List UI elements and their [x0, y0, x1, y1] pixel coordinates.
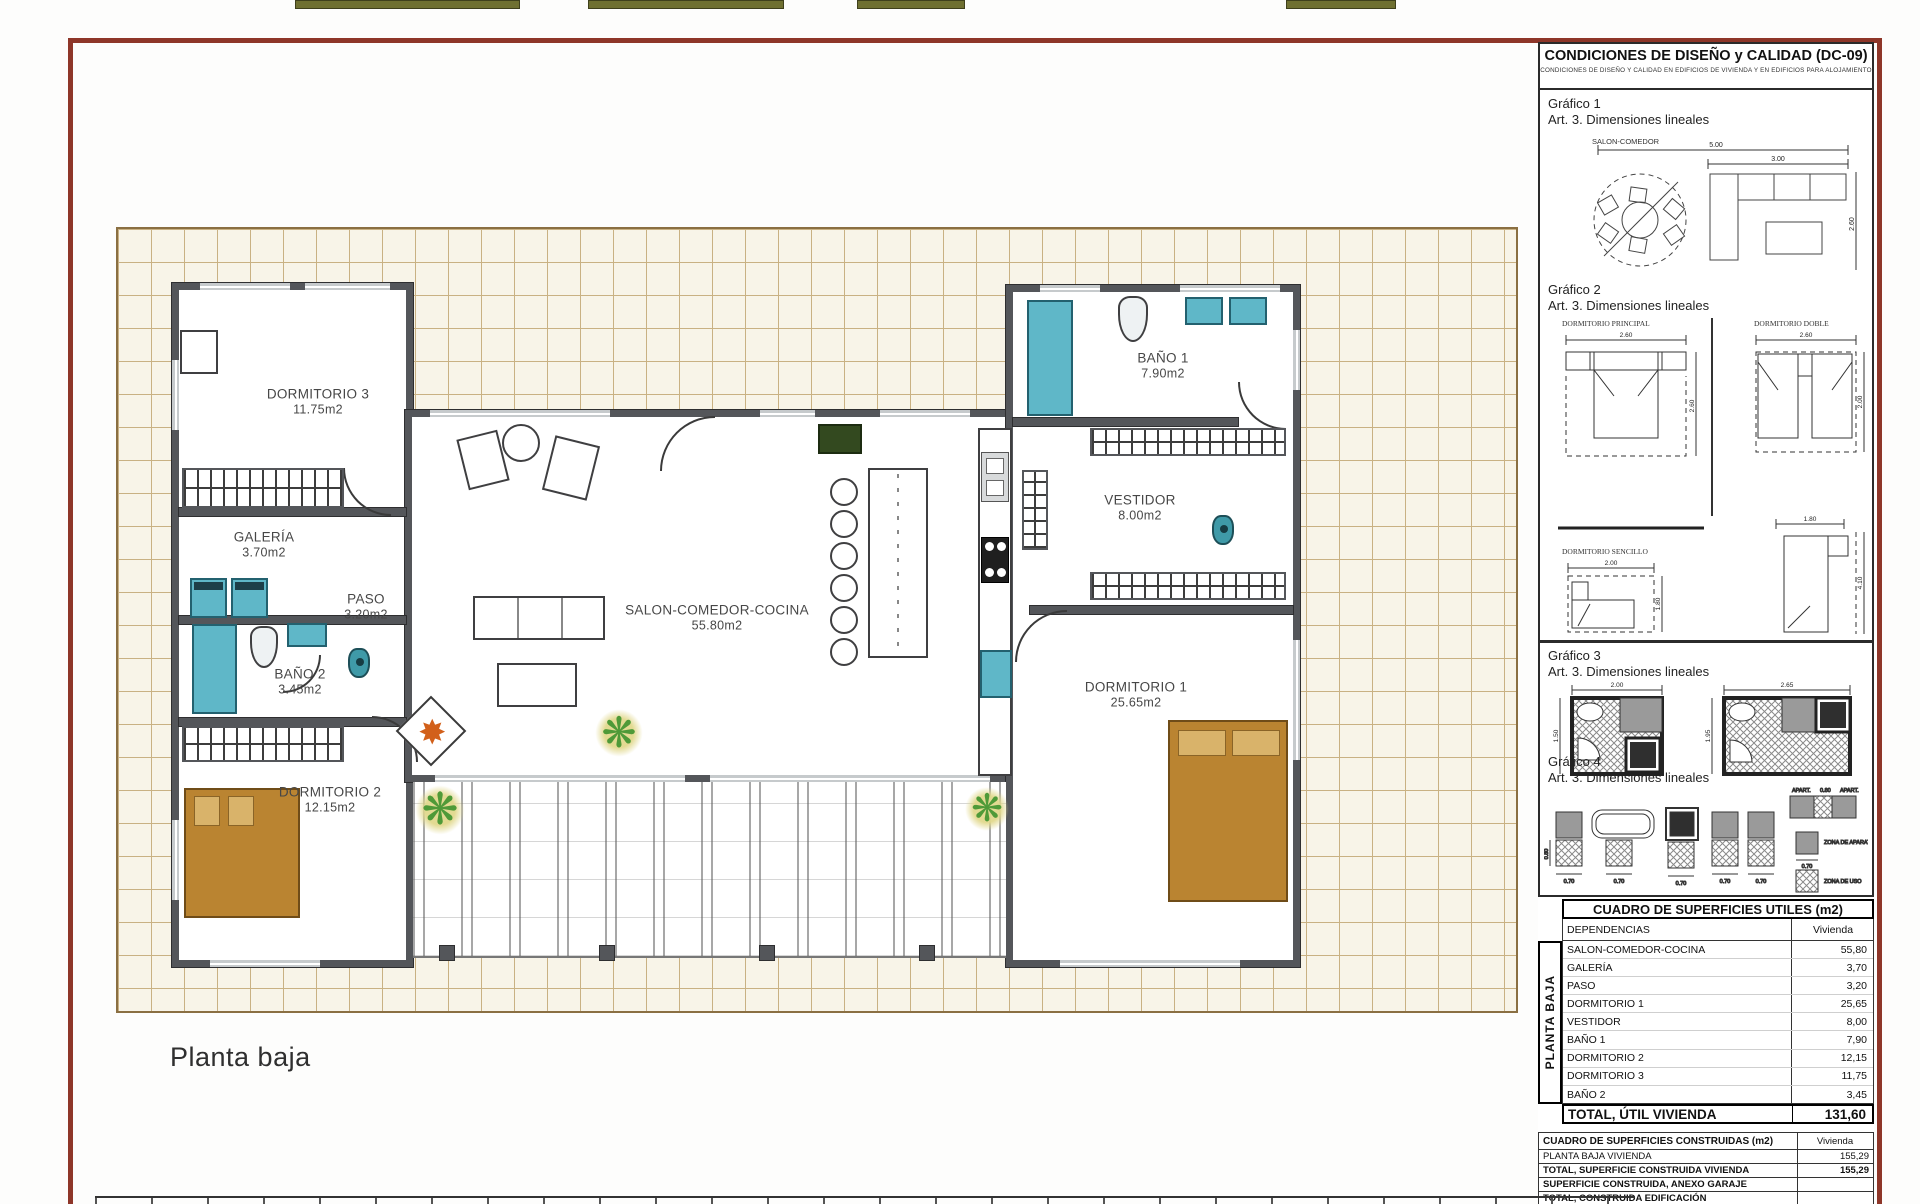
dim-label: 0.70 [1756, 879, 1767, 885]
window [880, 410, 970, 417]
side-table [502, 424, 540, 462]
planter-box [818, 424, 862, 454]
washer-panel [194, 582, 223, 590]
window [1060, 960, 1240, 967]
table-rows: SALON-COMEDOR-COCINA55,80 GALERÍA3,70 PA… [1562, 941, 1874, 1104]
sink-bano1 [1229, 297, 1267, 325]
table-row: SALON-COMEDOR-COCINA55,80 [1563, 941, 1873, 959]
room-name: SALON-COMEDOR-COCINA [625, 602, 809, 618]
window [760, 410, 815, 417]
bathroom-large-sketch: 2.65 1.95 [1705, 682, 1850, 774]
dim-label: APART. [1840, 788, 1859, 794]
person-figure [1212, 515, 1234, 545]
person-figure [348, 648, 370, 678]
dim-label: 2.60 [1620, 332, 1633, 339]
table-row: PASO3,20 [1563, 977, 1873, 995]
window [172, 820, 179, 900]
window [1293, 330, 1300, 390]
room-area: 8.00m2 [1104, 509, 1175, 524]
dim-label: 0.70 [1802, 864, 1813, 870]
dining-chair [830, 478, 858, 506]
washer [231, 578, 268, 618]
grafico4-title: Gráfico 4 Art. 3. Dimensiones lineales [1548, 754, 1709, 787]
total-label: TOTAL, ÚTIL VIVIENDA [1564, 1107, 1717, 1122]
dim-label: 4.10 [1857, 576, 1864, 589]
room-name: BAÑO 2 [274, 666, 325, 682]
window [1040, 285, 1100, 292]
dim-label: 0.70 [1720, 879, 1731, 885]
room-name: DORMITORIO 1 [1085, 679, 1187, 695]
wardrobe-dormitorio2 [182, 726, 344, 762]
sheet-border-right [1877, 38, 1882, 1204]
desk-dormitorio3 [180, 330, 218, 374]
wardrobe-dormitorio3 [182, 468, 344, 508]
grafico1-caption: SALON-COMEDOR [1592, 137, 1660, 146]
dim-label: 1.80 [1804, 516, 1817, 523]
caption: DORMITORIO DOBLE [1754, 319, 1829, 328]
table-superficies-construidas: CUADRO DE SUPERFICIES CONSTRUIDAS (m2) V… [1538, 1132, 1874, 1204]
vestidor-rail-side [1022, 470, 1048, 550]
dining-chair [830, 510, 858, 538]
table-row: GALERÍA3,70 [1563, 959, 1873, 977]
sheet-border-left [68, 38, 73, 1204]
bathtub-bano1 [1027, 300, 1073, 416]
table-body: PLANTA BAJA SALON-COMEDOR-COCINA55,80 GA… [1538, 941, 1874, 1104]
dim-label: 0.70 [1614, 879, 1625, 885]
dim-label: 0.70 [1676, 881, 1687, 887]
table-row: VESTIDOR8,00 [1563, 1013, 1873, 1031]
dim-label: APART. [1792, 788, 1811, 794]
room-label-paso: PASO 3.20m2 [344, 591, 388, 622]
sliding-door [710, 775, 990, 782]
room-area: 3.20m2 [344, 608, 388, 623]
total-value: 131,60 [1825, 1107, 1866, 1122]
caption: DORMITORIO PRINCIPAL [1562, 319, 1650, 328]
dormitorio-principal-sketch [1566, 335, 1696, 456]
dim-label: 2.00 [1605, 560, 1618, 567]
single-bed-tall-sketch [1776, 519, 1864, 634]
sink-bano1 [1185, 297, 1223, 325]
drawing-sheet: ✸ ❋ ❋ ❋ DORMITORIO 3 11.75m2 GALERÍA 3.7… [0, 0, 1920, 1204]
grafico2-diagram: DORMITORIO PRINCIPAL DORMITORIO DOBLE 2.… [1544, 316, 1868, 638]
room-area: 7.90m2 [1137, 367, 1188, 382]
room-label-galeria: GALERÍA 3.70m2 [234, 529, 295, 560]
dining-chair [830, 638, 858, 666]
sliding-door [435, 775, 685, 782]
porch-pergola [413, 782, 1006, 958]
room-area: 11.75m2 [267, 403, 369, 418]
room-name: GALERÍA [234, 529, 295, 545]
room-name: DORMITORIO 2 [279, 784, 381, 800]
room-area: 12.15m2 [279, 801, 381, 816]
table-row: TOTAL, SUPERFICIE CONSTRUIDA VIVIENDA 15… [1538, 1164, 1874, 1178]
plant-icon: ❋ [592, 706, 646, 760]
table-total-row: TOTAL, ÚTIL VIVIENDA 131,60 [1562, 1104, 1874, 1124]
room-area: 55.80m2 [625, 619, 809, 634]
dining-table [868, 468, 928, 658]
table-subheader: DEPENDENCIAS Vivienda [1562, 919, 1874, 941]
top-cutoff-strip [857, 0, 965, 9]
window [210, 960, 320, 967]
window [305, 283, 390, 290]
row-group-planta-baja: PLANTA BAJA [1538, 941, 1562, 1104]
window [1293, 640, 1300, 760]
partition-wall [1030, 606, 1293, 614]
dim-label: 2.00 [1611, 682, 1624, 689]
grafico1-diagram: SALON-COMEDOR 5.00 3.00 2.60 [1548, 132, 1864, 278]
tv-bench [497, 663, 577, 707]
grafico1-title: Gráfico 1 Art. 3. Dimensiones lineales [1548, 96, 1709, 129]
dishwasher [980, 650, 1012, 698]
room-area: 3.70m2 [234, 546, 295, 561]
clearance-items: 0.70 0.80 0.70 0.70 0.70 0.70 [1544, 808, 1774, 887]
dim-label: 2.60 [1689, 399, 1696, 412]
room-name: PASO [344, 591, 388, 607]
sink-bano2 [287, 623, 327, 647]
shower-bano2 [192, 624, 237, 714]
legend-label: ZONA DE APARATO [1824, 840, 1868, 846]
partition-wall [1013, 418, 1238, 426]
dim-label: 5.00 [1709, 142, 1723, 149]
dim-label: 2.60 [1800, 332, 1813, 339]
room-label-bano-1: BAÑO 1 7.90m2 [1137, 350, 1188, 381]
room-area: 25.65m2 [1085, 696, 1187, 711]
grafico3-title: Gráfico 3 Art. 3. Dimensiones lineales [1548, 648, 1709, 681]
dining-chair [830, 574, 858, 602]
window [1180, 285, 1280, 292]
washer [190, 578, 227, 618]
porch-post [760, 946, 774, 960]
top-cutoff-strip [1286, 0, 1396, 9]
table-superficies-utiles: CUADRO DE SUPERFICIES UTILES (m2) DEPEND… [1538, 899, 1874, 1124]
porch-post [600, 946, 614, 960]
sofa [473, 596, 605, 640]
room-name: BAÑO 1 [1137, 350, 1188, 366]
vestidor-rail-top [1090, 428, 1286, 456]
dim-label: 1.95 [1705, 729, 1712, 742]
panel-subtitle: CONDICIONES DE DISEÑO Y CALIDAD EN EDIFI… [1538, 67, 1874, 74]
col-dependencias: DEPENDENCIAS [1563, 924, 1650, 936]
dim-label: 3.00 [1771, 156, 1785, 163]
dim-label: 2.65 [1781, 682, 1794, 689]
panel-header: CONDICIONES DE DISEÑO y CALIDAD (DC-09) … [1538, 42, 1874, 90]
vestidor-rail-bottom [1090, 572, 1286, 600]
dim-label: 0.80 [1820, 788, 1831, 794]
porch-post [440, 946, 454, 960]
fireplace-flame-icon: ✸ [418, 716, 447, 750]
top-cutoff-strip [588, 0, 784, 9]
caption: DORMITORIO SENCILLO [1562, 547, 1648, 556]
room-label-dormitorio-3: DORMITORIO 3 11.75m2 [267, 386, 369, 417]
clearance-legend: APART. 0.80 APART. ZONA DE APARATO 0.70 … [1790, 788, 1868, 892]
dining-chair [830, 606, 858, 634]
stove [981, 537, 1009, 583]
grafico4-diagram: 0.70 0.80 0.70 0.70 0.70 0.70 APART. 0.8 [1544, 784, 1868, 894]
dining-chair [830, 542, 858, 570]
table-row: DORMITORIO 212,15 [1563, 1050, 1873, 1068]
top-cutoff-strip [295, 0, 520, 9]
room-label-dormitorio-2: DORMITORIO 2 12.15m2 [279, 784, 381, 815]
table-row: DORMITORIO 125,65 [1563, 995, 1873, 1013]
window [200, 283, 290, 290]
panel-title: CONDICIONES DE DISEÑO y CALIDAD (DC-09) [1538, 48, 1874, 64]
table-row: PLANTA BAJA VIVIENDA 155,29 [1538, 1150, 1874, 1164]
dim-label: 0.70 [1564, 879, 1575, 885]
dim-label: 1.50 [1553, 729, 1560, 742]
window [172, 360, 179, 430]
dim-label: 2.00 [1857, 395, 1864, 408]
room-label-vestidor: VESTIDOR 8.00m2 [1104, 492, 1175, 523]
section-divider [1538, 640, 1874, 643]
room-label-bano-2: BAÑO 2 3.45m2 [274, 666, 325, 697]
table-title: CUADRO DE SUPERFICIES UTILES (m2) [1562, 899, 1874, 919]
porch-post [920, 946, 934, 960]
table-row: BAÑO 23,45 [1563, 1086, 1873, 1104]
sofa-group [1710, 174, 1846, 260]
dormitorio-sencillo-sketch [1568, 563, 1662, 632]
dim-label: 2.60 [1849, 217, 1856, 231]
window [430, 410, 610, 417]
room-label-salon: SALON-COMEDOR-COCINA 55.80m2 [625, 602, 809, 633]
col-vivienda: Vivienda [1793, 924, 1873, 936]
kitchen-sink [981, 452, 1009, 502]
table-row: CUADRO DE SUPERFICIES CONSTRUIDAS (m2) V… [1538, 1132, 1874, 1150]
bed-dormitorio1 [1168, 720, 1288, 902]
dim-label: 0.80 [1544, 849, 1550, 860]
bottom-cutoff-strip [95, 1196, 1635, 1204]
conditions-panel: CONDICIONES DE DISEÑO y CALIDAD (DC-09) … [1538, 42, 1874, 1204]
table-row: DORMITORIO 311,75 [1563, 1068, 1873, 1086]
washer-panel [235, 582, 264, 590]
plan-title: Planta baja [170, 1042, 311, 1073]
grafico2-title: Gráfico 2 Art. 3. Dimensiones lineales [1548, 282, 1709, 315]
room-name: VESTIDOR [1104, 492, 1175, 508]
plant-icon: ❋ [412, 782, 468, 838]
round-table-group [1594, 174, 1686, 266]
dim-label: 1.80 [1655, 597, 1662, 610]
room-name: DORMITORIO 3 [267, 386, 369, 402]
plant-icon: ❋ [962, 784, 1012, 834]
room-label-dormitorio-1: DORMITORIO 1 25.65m2 [1085, 679, 1187, 710]
dormitorio-doble-sketch [1756, 335, 1864, 452]
table-row: BAÑO 17,90 [1563, 1031, 1873, 1049]
table-row: SUPERFICIE CONSTRUIDA, ANEXO GARAJE [1538, 1178, 1874, 1192]
room-area: 3.45m2 [274, 683, 325, 698]
legend-label: ZONA DE USO [1824, 879, 1862, 885]
